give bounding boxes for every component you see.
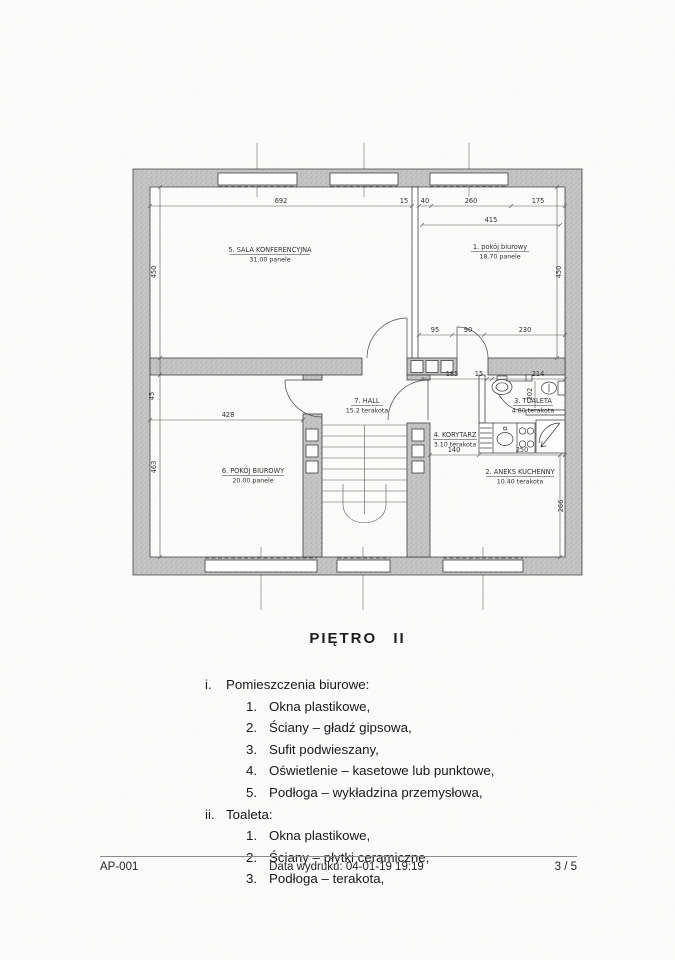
item-text: Sufit podwieszany, — [269, 739, 379, 761]
spec-section-heading: ii. Toaleta: — [205, 804, 625, 826]
window — [330, 173, 398, 185]
svg-text:20.00 panele: 20.00 panele — [232, 478, 273, 485]
door-pokoj6 — [285, 380, 322, 417]
room-label-sala-konferencyjna: 5. SALA KONFERENCYJNA 31.00 panele — [228, 246, 312, 264]
spec-item: 5. Podłoga – wykładzina przemysłowa, — [205, 782, 625, 804]
page-title: PIĘTRO II — [130, 630, 585, 647]
svg-text:6. POKÓJ BIUROWY: 6. POKÓJ BIUROWY — [222, 466, 285, 475]
dim-450-left: 450 — [150, 266, 158, 279]
window — [337, 560, 390, 572]
wc-icon — [542, 381, 566, 395]
window — [430, 173, 508, 185]
dim-15: 15 — [400, 197, 408, 205]
mid-wall-right — [488, 358, 565, 375]
section-marker: i. — [205, 674, 226, 696]
stair-wall-left-stub — [303, 375, 322, 380]
footer-page-number: 3 / 5 — [555, 861, 577, 873]
staircase — [322, 425, 407, 523]
svg-text:31.00 panele: 31.00 panele — [249, 257, 290, 264]
footer-print-date: Data wydruku: 04-01-19 19:19 — [269, 861, 424, 873]
dim-90: 90 — [464, 326, 472, 334]
dim-45: 45 — [148, 392, 156, 400]
spec-section-heading: i. Pomieszczenia biurowe: — [205, 674, 625, 696]
dim-415: 415 — [485, 216, 498, 224]
door-korytarz — [388, 380, 428, 420]
item-marker: 1. — [246, 825, 269, 847]
room-label-korytarz: 4. KORYTARZ 3.10 terakota — [433, 431, 477, 449]
stair-wall-right — [407, 423, 430, 557]
floor-plan-svg: 692 15 40 260 175 415 450 450 95 90 230 … — [130, 137, 585, 612]
section-heading: Pomieszczenia biurowe: — [226, 674, 369, 696]
item-marker: 2. — [246, 717, 269, 739]
item-text: Okna plastikowe, — [269, 825, 370, 847]
svg-text:15.2 terakota: 15.2 terakota — [346, 408, 389, 415]
floor-plan: 692 15 40 260 175 415 450 450 95 90 230 … — [130, 137, 585, 612]
item-text: Ściany – gładź gipsowa, — [269, 717, 412, 739]
window — [205, 560, 317, 572]
svg-text:5. SALA KONFERENCYJNA: 5. SALA KONFERENCYJNA — [228, 246, 312, 254]
divider-wall — [412, 187, 418, 358]
window — [443, 560, 523, 572]
svg-text:18.70 panele: 18.70 panele — [479, 254, 520, 261]
item-marker: 1. — [246, 696, 269, 718]
dim-463: 463 — [150, 461, 158, 474]
svg-text:1. pokój biurowy: 1. pokój biurowy — [473, 243, 527, 251]
item-marker: 5. — [246, 782, 269, 804]
item-marker: 3. — [246, 739, 269, 761]
room-label-toaleta: 3. TOALETA 4.80 terakota — [512, 397, 555, 415]
dim-260: 260 — [465, 197, 478, 205]
page-footer: AP-001 Data wydruku: 04-01-19 19:19 3 / … — [100, 856, 577, 873]
item-text: Oświetlenie – kasetowe lub punktowe, — [269, 760, 494, 782]
section-marker: ii. — [205, 804, 226, 826]
svg-text:3. TOALETA: 3. TOALETA — [514, 397, 552, 405]
window — [218, 173, 297, 185]
dim-15b: 15 — [475, 370, 483, 378]
dim-185: 185 — [446, 370, 459, 378]
svg-text:7. HALL: 7. HALL — [354, 397, 380, 405]
spec-item: 4. Oświetlenie – kasetowe lub punktowe, — [205, 760, 625, 782]
spec-item: 2. Ściany – gładź gipsowa, — [205, 717, 625, 739]
item-text: Podłoga – wykładzina przemysłowa, — [269, 782, 483, 804]
door-pokoj1 — [457, 327, 488, 358]
section-heading: Toaleta: — [226, 804, 273, 826]
dim-230: 230 — [519, 326, 532, 334]
mid-wall-left — [150, 358, 362, 375]
item-text: Okna plastikowe, — [269, 696, 370, 718]
svg-text:2. ANEKS KUCHENNY: 2. ANEKS KUCHENNY — [485, 468, 555, 476]
dim-40: 40 — [421, 197, 429, 205]
korytarz-wall — [479, 375, 485, 423]
dim-250: 250 — [516, 446, 529, 454]
dim-266: 266 — [557, 500, 565, 513]
item-marker: 4. — [246, 760, 269, 782]
walls — [133, 169, 582, 575]
spec-item: 1. Okna plastikowe, — [205, 696, 625, 718]
room-label-aneks-kuchenny: 2. ANEKS KUCHENNY 10.40 terakota — [485, 468, 555, 486]
shower-icon — [536, 420, 565, 453]
door-sala — [367, 318, 407, 358]
svg-text:3.10 terakota: 3.10 terakota — [434, 442, 477, 449]
dim-95: 95 — [431, 326, 439, 334]
spec-item: 1. Okna plastikowe, — [205, 825, 625, 847]
dim-450-right: 450 — [555, 266, 563, 279]
room-label-pokoj-biurowy-1: 1. pokój biurowy 18.70 panele — [471, 243, 529, 261]
room-label-pokoj-biurowy-6: 6. POKÓJ BIUROWY 20.00 panele — [222, 466, 285, 485]
dim-692: 692 — [275, 197, 288, 205]
spec-item: 3. Sufit podwieszany, — [205, 739, 625, 761]
dim-214: 214 — [532, 370, 545, 378]
svg-text:4. KORYTARZ: 4. KORYTARZ — [434, 431, 477, 439]
dim-428: 428 — [222, 411, 235, 419]
dim-175: 175 — [532, 197, 545, 205]
room-label-hall: 7. HALL 15.2 terakota — [346, 397, 389, 415]
svg-text:4.80 terakota: 4.80 terakota — [512, 408, 555, 415]
svg-text:10.40 terakota: 10.40 terakota — [497, 479, 544, 486]
footer-doc-id: AP-001 — [100, 861, 138, 873]
